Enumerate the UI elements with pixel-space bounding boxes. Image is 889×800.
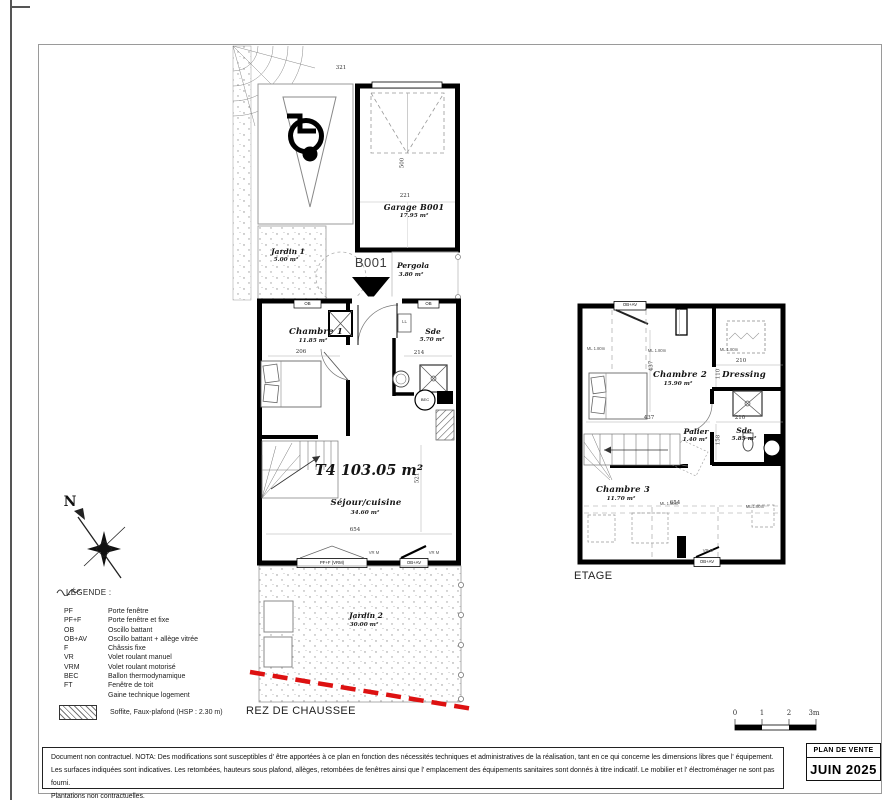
parking-bay: [258, 84, 353, 224]
sde-upper-dim-w: 210: [735, 416, 746, 422]
garage-dim-width: 221: [400, 194, 411, 200]
chambre2-dim-v: 437: [649, 361, 655, 372]
legend-row-ft: FTFenêtre de toit: [56, 681, 291, 690]
jardin2-name: Jardin 2: [349, 612, 383, 620]
title-block: PLAN DE VENTE JUIN 2025: [806, 743, 881, 781]
legend-row-obav: OB+AVOscillo battant + allège vitrée: [56, 635, 291, 644]
legend-abbr: BEC: [64, 672, 108, 681]
legend-label: Oscillo battant + allège vitrée: [108, 636, 198, 643]
jardin2-area: 30.00 m²: [350, 623, 379, 629]
legend-row-bec: BECBallon thermodynamique: [56, 672, 291, 681]
legend-label: Châssis fixe: [108, 645, 146, 652]
legend-title: LÉGENDE :: [66, 588, 291, 597]
north-label: N: [64, 495, 77, 509]
legend-label: Oscillo battant: [108, 627, 152, 634]
window-obav-upper-bottom: OB+AV: [700, 560, 714, 564]
scale-bar: [735, 719, 816, 730]
legend-label: Volet roulant manuel: [108, 654, 172, 661]
legend-label: Porte fenêtre et fixe: [108, 617, 169, 624]
bec-label: BEC: [421, 398, 429, 402]
soffite-hatch-icon: [59, 705, 97, 720]
legend-abbr: F: [64, 644, 108, 653]
chambre2-name: Chambre 2: [653, 371, 707, 380]
sde-ground-area: 5.70 m²: [420, 338, 445, 344]
legend-row-gaine: Gaine technique logement: [56, 691, 291, 700]
legend-abbr: OB: [64, 626, 108, 635]
sde-ground-dim: 214: [414, 351, 425, 357]
unit-number: B001: [355, 256, 387, 269]
sde-upper-dim-v: 158: [716, 435, 722, 446]
garage-dim-height: 500: [400, 158, 406, 169]
chambre2-dim-h: 437: [644, 416, 655, 422]
dressing-dim-v: 110: [716, 369, 722, 380]
chambre3-area: 11.70 m²: [607, 497, 636, 503]
vrm-note-1: VR M: [369, 551, 379, 555]
flue-box: [676, 309, 687, 335]
palier-area: 1.40 m²: [683, 438, 708, 444]
sink-upper: [764, 440, 780, 456]
window-obav-ground: OB+AV: [407, 561, 421, 565]
legend-row-pff: PF+FPorte fenêtre et fixe: [56, 616, 291, 625]
sink-ground: [393, 371, 409, 387]
sejour-dim-h: 521: [415, 473, 421, 484]
disclaimer-line2: Les surfaces indiquées sont indicatives.…: [51, 764, 775, 790]
chambre3-name: Chambre 3: [596, 486, 650, 495]
garage-name: Garage B001: [384, 203, 445, 211]
title-block-date: JUIN 2025: [807, 758, 880, 780]
scale-tick-1: 1: [760, 710, 764, 717]
bed-icon-ground: [261, 361, 321, 407]
sejour-area: 34.60 m²: [351, 511, 380, 517]
dressing-name: Dressing: [722, 371, 766, 380]
palier-name: Palier: [684, 428, 709, 436]
type-area-label: T4 103.05 m²: [315, 464, 423, 479]
window-ob-1: OB: [304, 302, 310, 306]
jardin1-name: Jardin 1: [271, 248, 305, 256]
legend: LÉGENDE : PFPorte fenêtre PF+FPorte fenê…: [56, 588, 291, 720]
legend-abbr: VR: [64, 653, 108, 662]
legend-abbr: PF+F: [64, 616, 108, 625]
sde-upper-name: Sde: [736, 427, 751, 435]
sde-ground-name: Sde: [425, 328, 440, 336]
legend-label: Porte fenêtre: [108, 608, 148, 615]
chambre1-name: Chambre 1: [289, 328, 343, 337]
title-block-name: PLAN DE VENTE: [807, 744, 880, 758]
washer-label: LL: [402, 320, 407, 325]
entry-pergola: [316, 252, 461, 302]
sejour-dim-w: 654: [350, 528, 361, 534]
scale-tick-2: 2: [787, 710, 791, 717]
disclaimer-box: Document non contractuel. NOTA: Des modi…: [42, 747, 784, 789]
height-note-5: ML 1.80m: [746, 505, 764, 509]
legend-row-soffite: Soffite, Faux-plafond (HSP : 2.30 m): [56, 705, 291, 720]
vrm-note-3: VR M: [703, 549, 713, 553]
legend-abbr: FT: [64, 681, 108, 690]
height-note-2: ML 1.80m: [648, 349, 666, 353]
scale-tick-3: 3m: [808, 710, 819, 717]
dressing-dim-w: 210: [736, 359, 747, 365]
legend-label: Fenêtre de toit: [108, 682, 153, 689]
vrm-note-2: VR M: [429, 551, 439, 555]
north-compass: [74, 508, 125, 578]
upper-floor-house: [580, 302, 784, 567]
garage-plan: [358, 82, 458, 250]
legend-abbr: PF: [64, 607, 108, 616]
chambre1-dim: 206: [296, 350, 307, 356]
sde-upper-area: 5.85 m²: [732, 437, 757, 443]
garage-area: 17.95 m²: [400, 214, 429, 220]
pergola-name: Pergola: [397, 262, 429, 270]
plan-de-vente-page: Garage B001 17.95 m² 221 500 321 Jardin …: [0, 0, 889, 800]
jardin1-area: 5.00 m²: [274, 258, 299, 264]
legend-label: Soffite, Faux-plafond (HSP : 2.30 m): [110, 709, 223, 716]
window-obav-upper-top: OB+AV: [623, 303, 637, 307]
chambre2-area: 15.90 m²: [664, 382, 693, 388]
legend-label: Ballon thermodynamique: [108, 673, 185, 680]
legend-abbr: OB+AV: [64, 635, 108, 644]
window-ob-2: OB: [425, 302, 431, 306]
legend-label: Volet roulant motorisé: [108, 664, 176, 671]
window-pff: PF+F (VRM): [320, 561, 344, 565]
soffite-hatch: [436, 410, 454, 440]
sejour-name: Séjour/cuisine: [330, 499, 401, 508]
height-note-1: ML 1.80m: [587, 347, 605, 351]
legend-abbr: VRM: [64, 663, 108, 672]
height-note-4: ML 1.80m: [660, 502, 678, 506]
legend-row-ob: OBOscillo battant: [56, 626, 291, 635]
garage-dim-side: 321: [336, 66, 347, 72]
legend-row-pf: PFPorte fenêtre: [56, 607, 291, 616]
pergola-area: 3.80 m²: [399, 273, 424, 279]
legend-row-vr: VRVolet roulant manuel: [56, 653, 291, 662]
upper-floor-title: ETAGE: [574, 571, 612, 582]
scale-tick-0: 0: [733, 710, 737, 717]
chambre1-area: 11.85 m²: [299, 339, 328, 345]
legend-row-vrm: VRMVolet roulant motorisé: [56, 663, 291, 672]
disclaimer-line1: Document non contractuel. NOTA: Des modi…: [51, 751, 775, 764]
bed-icon-upper: [589, 373, 647, 419]
disclaimer-line3: Plantations non contractuelles.: [51, 790, 775, 800]
legend-row-f: FChâssis fixe: [56, 644, 291, 653]
height-note-3: ML 1.80m: [720, 348, 738, 352]
legend-label: Gaine technique logement: [108, 692, 190, 699]
